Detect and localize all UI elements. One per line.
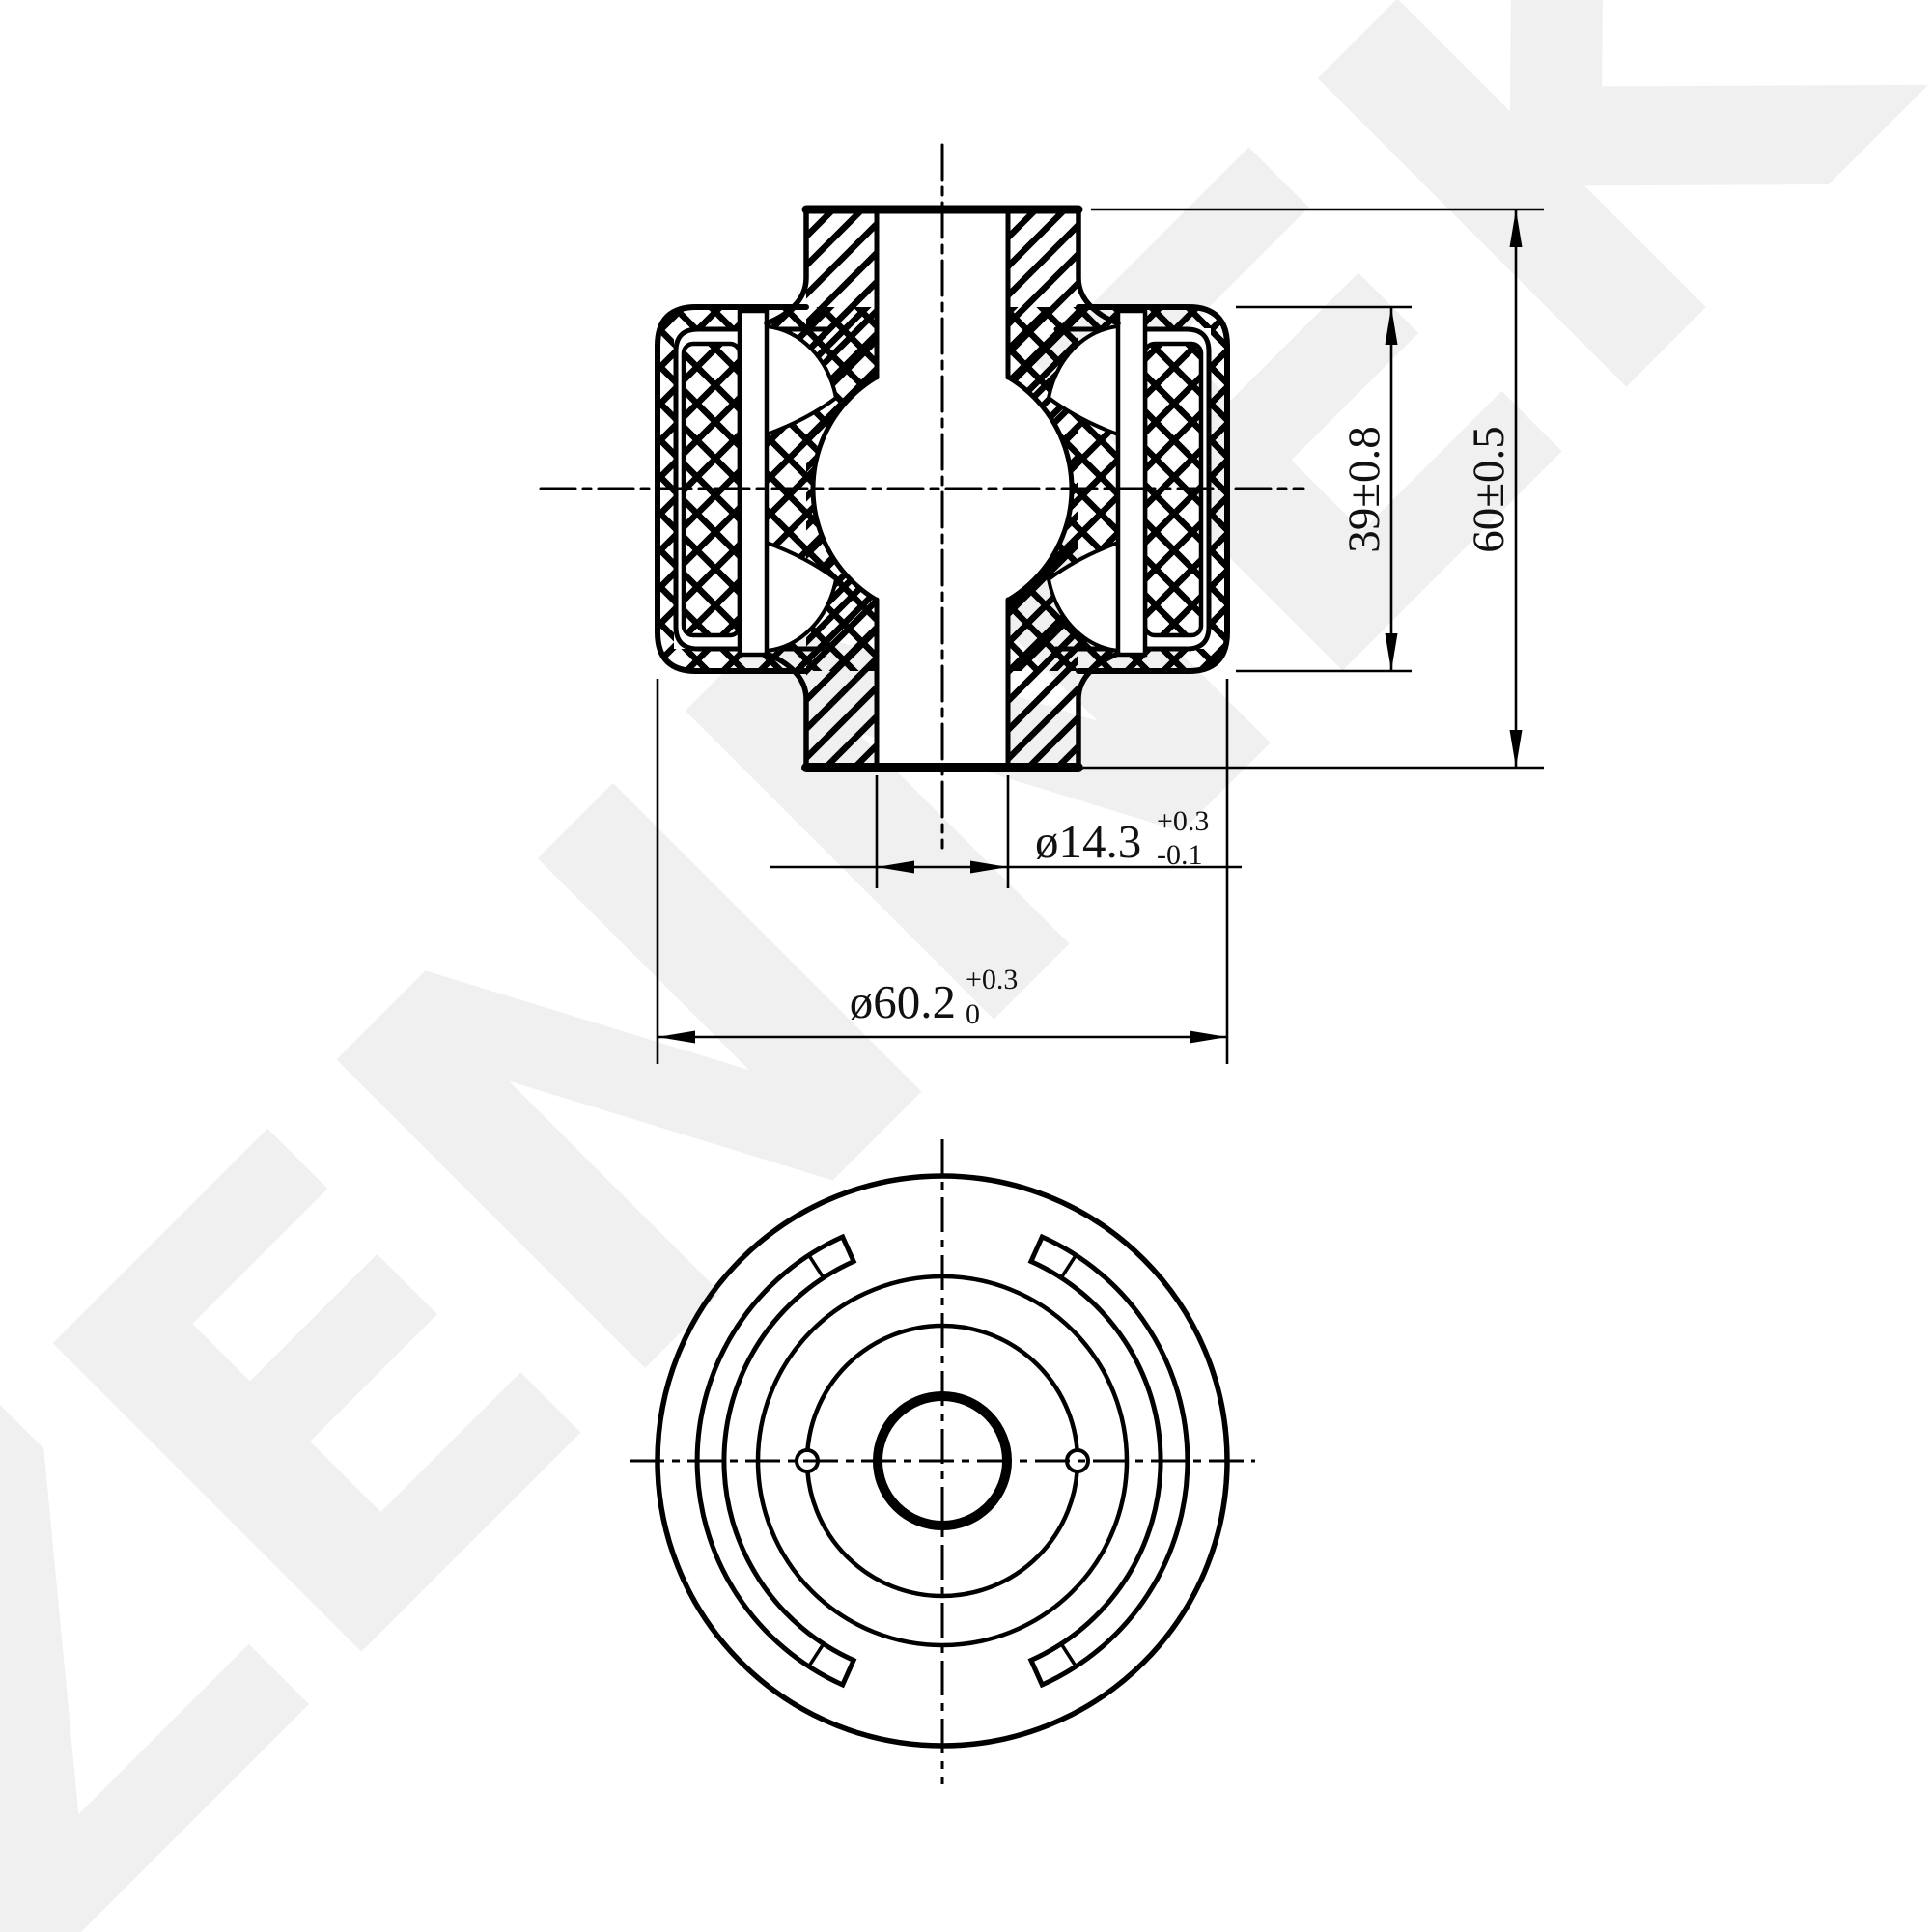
dim-outer-dia-tol-lower: 0 xyxy=(966,998,980,1030)
dim-bore-tol-upper: +0.3 xyxy=(1157,805,1209,837)
dim-bore-tol-lower: -0.1 xyxy=(1157,839,1203,871)
dim-inner-height-text: 39±0.8 xyxy=(1339,426,1389,553)
drawing-page: ZENNEK xyxy=(0,0,1932,1932)
arrow-right xyxy=(1190,1031,1227,1044)
dim-outer-dia-text: ø60.2 xyxy=(850,975,956,1028)
left-washer xyxy=(740,311,767,655)
dim-bore-text: ø14.3 xyxy=(1035,815,1141,868)
dim-outer-dia-tol-upper: +0.3 xyxy=(966,964,1018,995)
dim-overall-height-text: 60±0.5 xyxy=(1464,426,1514,553)
right-washer xyxy=(1118,311,1145,655)
technical-drawing-canvas: ZENNEK xyxy=(0,0,1932,1932)
arrow-down xyxy=(1510,730,1523,768)
